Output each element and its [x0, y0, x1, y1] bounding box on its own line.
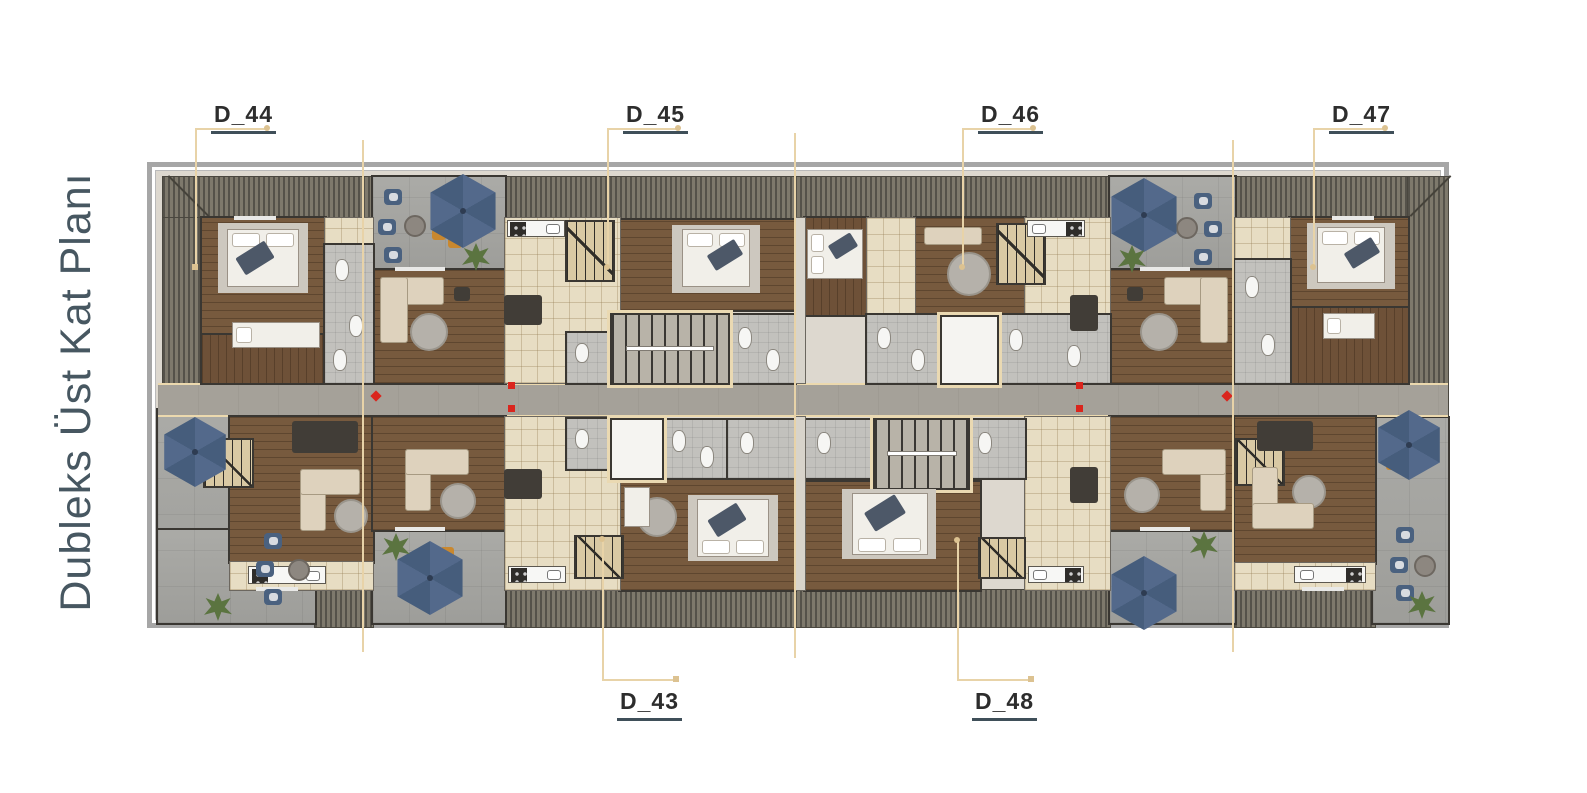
building-separation [795, 417, 805, 590]
unit-label-d47[interactable]: D_47 [1329, 101, 1394, 134]
leader-line-d43 [602, 539, 604, 681]
fire-marker [508, 382, 515, 389]
floor-plan-page: Dubleks Üst Kat Planı [0, 0, 1587, 793]
kitchen-counter [1028, 566, 1084, 583]
dining-table [504, 469, 542, 499]
terrace-chair [384, 189, 402, 205]
stairs-icon [980, 539, 1024, 577]
rug [1124, 477, 1160, 513]
leader-line-d44 [195, 128, 197, 268]
bathroom [325, 245, 373, 383]
kitchen-counter [507, 220, 565, 237]
rug [440, 483, 476, 519]
elevator-upper [942, 317, 997, 383]
sink-icon [547, 570, 561, 580]
terrace-chair [1396, 527, 1414, 543]
leader-dot [192, 264, 198, 270]
stairwell-lower [875, 420, 968, 488]
kitchen-counter [508, 566, 566, 583]
leader-dot [604, 264, 610, 270]
central-corridor [158, 383, 1448, 417]
leader-line-d43 [602, 679, 677, 681]
bathroom [805, 420, 875, 478]
terrace-chair [1396, 585, 1414, 601]
armchair [1127, 287, 1143, 301]
kitchen-hall-d48 [1025, 417, 1110, 590]
leader-line-d45 [607, 128, 609, 268]
stove-icon [1346, 568, 1362, 582]
fire-marker [1076, 382, 1083, 389]
window-sill [1302, 587, 1344, 591]
stairs-icon [576, 537, 622, 577]
leader-line-d47 [1313, 128, 1315, 268]
leader-line-d48 [957, 540, 959, 681]
sofa-icon [1200, 277, 1228, 343]
unit-label-d45[interactable]: D_45 [623, 101, 688, 134]
dining-table [1070, 467, 1098, 503]
leader-dot [959, 264, 965, 270]
entry-d47 [1235, 218, 1290, 260]
kitchen-counter [1027, 220, 1085, 237]
elevator-lower [612, 420, 662, 478]
sink-icon [1032, 224, 1046, 234]
dining-table [504, 295, 542, 325]
terrace-table [1414, 555, 1436, 577]
building-separation [795, 218, 805, 383]
sink-icon [1033, 570, 1047, 580]
sofa-icon [405, 449, 469, 475]
window-sill [1140, 267, 1190, 271]
dining-table [1257, 421, 1313, 451]
armchair [454, 287, 470, 301]
rug [410, 313, 448, 351]
terrace-chair [384, 247, 402, 263]
leader-dot [1028, 676, 1034, 682]
rug [1140, 313, 1178, 351]
sofa-icon [380, 277, 408, 343]
floor-plan [147, 162, 1449, 628]
terrace-table [1176, 217, 1198, 239]
terrace-chair [256, 561, 274, 577]
terrace-chair [1204, 221, 1222, 237]
leader-dot [954, 537, 960, 543]
window-sill [1140, 527, 1190, 531]
stove-icon [510, 222, 526, 236]
unit-label-d43[interactable]: D_43 [617, 688, 682, 721]
leader-dot [1310, 264, 1316, 270]
terrace-chair [264, 589, 282, 605]
terrace-chair [264, 533, 282, 549]
bathroom [662, 420, 728, 478]
bathroom [728, 315, 795, 383]
leader-line-d46 [962, 128, 964, 268]
hall-upper-right [867, 218, 915, 315]
terrace-chair [1194, 249, 1212, 265]
dining-table [292, 421, 358, 453]
stairwell-upper [612, 315, 728, 383]
terrace-table [404, 215, 426, 237]
bed-icon [697, 499, 769, 557]
sofa-icon [1252, 503, 1314, 529]
stove-icon [511, 568, 527, 582]
terrace-chair [378, 219, 396, 235]
bed-icon [232, 322, 320, 348]
roof-hatch-top-mid [505, 177, 1110, 218]
bed-icon [852, 493, 928, 555]
sofa-icon [300, 469, 360, 495]
fire-marker [1076, 405, 1083, 412]
unit-label-d46[interactable]: D_46 [978, 101, 1043, 134]
dining-table [1070, 295, 1098, 331]
sink-icon [1300, 570, 1314, 580]
bathroom [867, 315, 945, 383]
window-sill [395, 527, 445, 531]
bed-icon [227, 229, 299, 287]
entry-d44 [325, 218, 373, 245]
terrace-table [288, 559, 310, 581]
bed-icon [682, 229, 750, 287]
terrace-chair [1194, 193, 1212, 209]
sofa-icon [1162, 449, 1226, 475]
stove-icon [1065, 568, 1081, 582]
rug [947, 252, 991, 296]
sofa-icon [924, 227, 982, 245]
section-line [1232, 140, 1234, 652]
fire-marker [508, 405, 515, 412]
window-sill [234, 216, 276, 220]
crib [624, 487, 650, 527]
bathroom [968, 420, 1025, 478]
roof-hatch-bottom-left [315, 590, 373, 627]
bed-icon [1317, 227, 1385, 283]
leader-dot [599, 536, 605, 542]
unit-label-d44[interactable]: D_44 [211, 101, 276, 134]
leader-dot [673, 676, 679, 682]
unit-label-d48[interactable]: D_48 [972, 688, 1037, 721]
bed-icon [807, 229, 863, 279]
window-sill [1332, 216, 1374, 220]
page-title: Dubleks Üst Kat Planı [52, 162, 104, 622]
roof-hatch-bottom-right [1235, 590, 1375, 627]
sink-icon [546, 224, 560, 234]
terrace-chair [1390, 557, 1408, 573]
window-sill [395, 267, 445, 271]
roof-hatch-top-right [1235, 177, 1408, 218]
section-line [362, 140, 364, 652]
section-line [794, 133, 796, 658]
roof-hatch-bottom-mid [505, 590, 1110, 627]
kitchen-counter [1294, 566, 1366, 583]
leader-line-d48 [957, 679, 1032, 681]
bathroom [728, 420, 795, 478]
bathroom [1235, 260, 1290, 383]
bed-icon [1323, 313, 1375, 339]
stove-icon [1066, 222, 1082, 236]
